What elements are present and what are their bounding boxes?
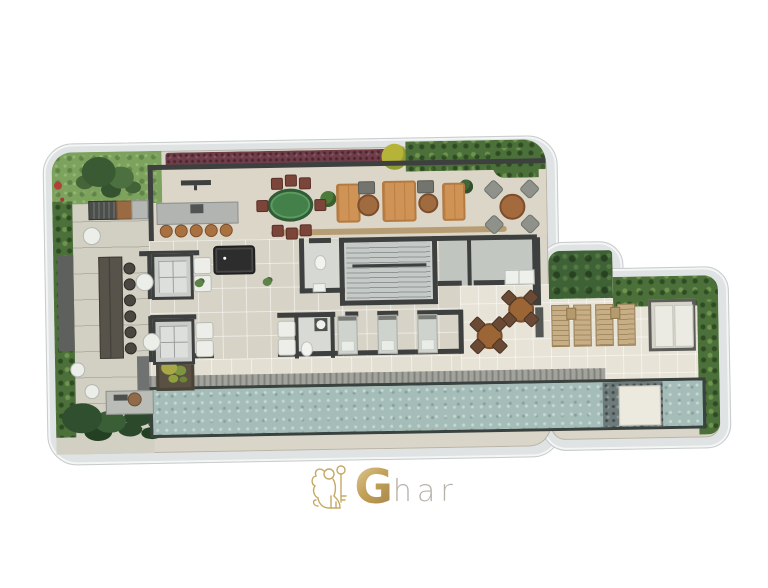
lobby-armchair [278,339,296,356]
card-table-chair [299,177,311,189]
outdoor-kitchen-counter [57,255,75,351]
basin-bowl-icon [316,320,325,329]
sink-icon [313,283,326,292]
lounger-side-table [610,307,620,319]
massage-bed [337,315,358,354]
card-table-chair [286,227,298,239]
bed-head-icon [418,315,436,319]
spa-basin-icon [314,318,327,331]
card-table-chair [314,199,326,211]
bbq-grill [88,201,118,221]
card-table-chair [256,200,268,212]
toilet-icon [314,255,326,270]
bed-pillow-icon [341,341,355,352]
desk-equipment [114,394,128,400]
elevator-car-icon [159,325,188,357]
lounger-side-table [566,308,576,320]
floor-plan [0,0,768,487]
lobby-armchair [196,340,214,357]
pool-platform [619,385,662,426]
double-daybed [648,299,696,352]
bar-stool [205,224,218,237]
bed-pillow-icon [381,340,395,351]
wall-tech-bottom-a [438,281,462,286]
massage-bed [377,315,398,354]
lounge-sofa [382,180,417,222]
bed-head-icon [378,316,396,320]
lobby-armchair [195,322,213,339]
swimming-pool [149,377,706,438]
daybed-mattress [654,305,674,347]
massage-bed [417,314,438,353]
lobby-armchair [277,321,295,338]
elevator-car-icon [158,260,187,292]
wall-spa-right-end [458,310,464,354]
ceiling-light-stem [194,185,197,190]
bbq-counter [131,200,148,219]
bar-sink [190,204,203,213]
logo-text: har [393,474,458,509]
lion-with-key-icon [310,462,352,512]
room-technical-1 [439,239,468,286]
communal-table [98,257,124,359]
wall-restroom-left [299,238,305,293]
wall-spa-top-b [277,312,335,318]
garden-step-lawn [548,250,613,299]
elevator [151,253,194,300]
billiard-ball-icon [223,257,226,260]
brand-logo: G har [0,452,768,522]
card-table-chair [272,225,284,237]
ottoman [417,180,434,193]
card-table-chair [285,175,297,187]
logo-letter-g: G [354,464,391,511]
bed-head-icon [338,316,356,320]
wall-tech-divider [467,238,472,285]
ottoman [358,181,375,194]
wall-core-top-a [309,238,331,243]
daybed-mattress [674,305,694,347]
reception-panel [137,356,150,390]
staircase [346,242,431,299]
lounge-sofa [442,183,466,221]
cabinet-counter [504,269,534,285]
toilet-icon [301,341,313,356]
card-table-chair [271,178,283,190]
lobby-armchair [193,257,211,274]
card-table-chair [300,224,312,236]
bed-pillow-icon [421,339,435,350]
billiards-table [213,245,255,275]
